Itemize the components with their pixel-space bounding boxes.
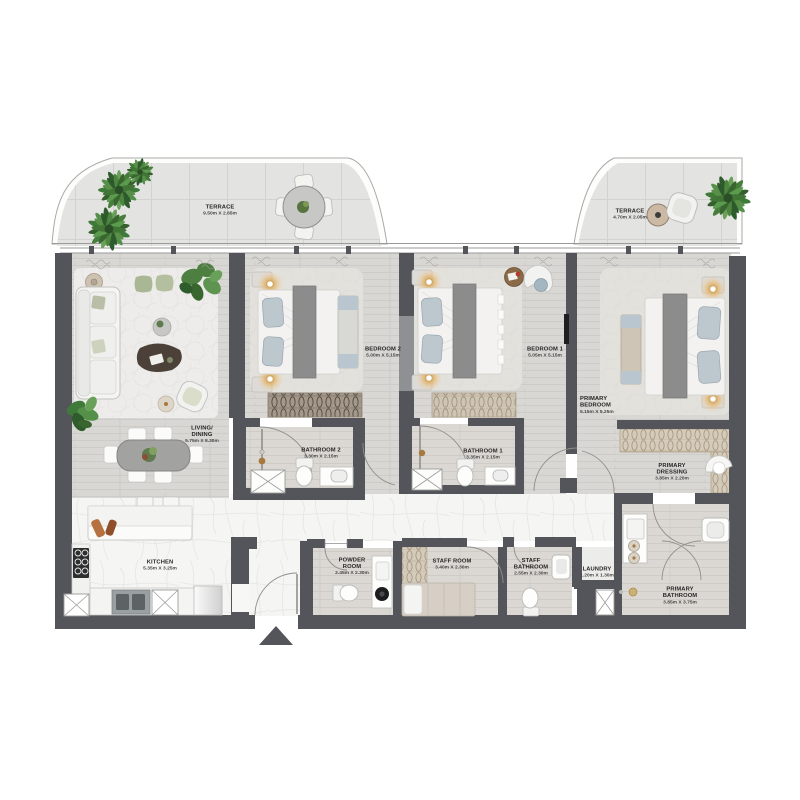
svg-text:2.55m X 2.30m: 2.55m X 2.30m bbox=[514, 571, 548, 577]
svg-text:PRIMARY: PRIMARY bbox=[666, 587, 693, 593]
svg-text:5.75m X 8.30m: 5.75m X 8.30m bbox=[185, 438, 219, 444]
svg-text:ROOM: ROOM bbox=[343, 564, 362, 570]
svg-text:BATHROOM: BATHROOM bbox=[514, 565, 549, 571]
svg-text:5.05m X 5.15m: 5.05m X 5.15m bbox=[528, 353, 562, 359]
svg-text:9.50m X 2.65m: 9.50m X 2.65m bbox=[203, 211, 237, 217]
svg-text:5.35m X 3.25m: 5.35m X 3.25m bbox=[143, 566, 177, 572]
svg-text:3.40m X 2.30m: 3.40m X 2.30m bbox=[435, 565, 469, 571]
svg-text:BATHROOM: BATHROOM bbox=[663, 593, 698, 599]
svg-text:POWDER: POWDER bbox=[339, 558, 366, 564]
svg-text:STAFF ROOM: STAFF ROOM bbox=[433, 559, 472, 565]
svg-text:LIVING/: LIVING/ bbox=[191, 426, 213, 432]
svg-text:DRESSING: DRESSING bbox=[656, 470, 687, 476]
svg-text:3.30m X 2.15m: 3.30m X 2.15m bbox=[304, 454, 338, 460]
svg-text:3.85m X 3.75m: 3.85m X 3.75m bbox=[663, 600, 697, 606]
svg-text:1.20m X 1.30m: 1.20m X 1.30m bbox=[580, 573, 614, 579]
svg-text:LAUNDRY: LAUNDRY bbox=[583, 567, 612, 573]
svg-text:3.85m X 2.20m: 3.85m X 2.20m bbox=[655, 476, 689, 482]
svg-text:2.45m X 2.30m: 2.45m X 2.30m bbox=[335, 570, 369, 576]
svg-text:PRIMARY: PRIMARY bbox=[580, 396, 607, 402]
svg-text:BATHROOM 1: BATHROOM 1 bbox=[463, 449, 503, 455]
svg-text:PRIMARY: PRIMARY bbox=[658, 463, 685, 469]
svg-text:4.70m X 2.05m: 4.70m X 2.05m bbox=[613, 215, 647, 221]
svg-text:DINING: DINING bbox=[192, 432, 213, 438]
svg-text:TERRACE: TERRACE bbox=[206, 205, 235, 211]
svg-text:BEDROOM 2: BEDROOM 2 bbox=[365, 347, 401, 353]
svg-text:KITCHEN: KITCHEN bbox=[147, 560, 173, 566]
svg-text:3.35m X 2.15m: 3.35m X 2.15m bbox=[466, 455, 500, 461]
svg-text:STAFF: STAFF bbox=[522, 558, 541, 564]
svg-text:TERRACE: TERRACE bbox=[616, 209, 645, 215]
svg-text:BATHROOM 2: BATHROOM 2 bbox=[301, 448, 341, 454]
svg-text:BEDROOM 1: BEDROOM 1 bbox=[527, 347, 564, 353]
svg-text:5.15m X 5.25m: 5.15m X 5.25m bbox=[580, 409, 614, 415]
svg-text:5.00m X 5.15m: 5.00m X 5.15m bbox=[366, 353, 400, 359]
svg-text:BEDROOM: BEDROOM bbox=[580, 403, 611, 409]
